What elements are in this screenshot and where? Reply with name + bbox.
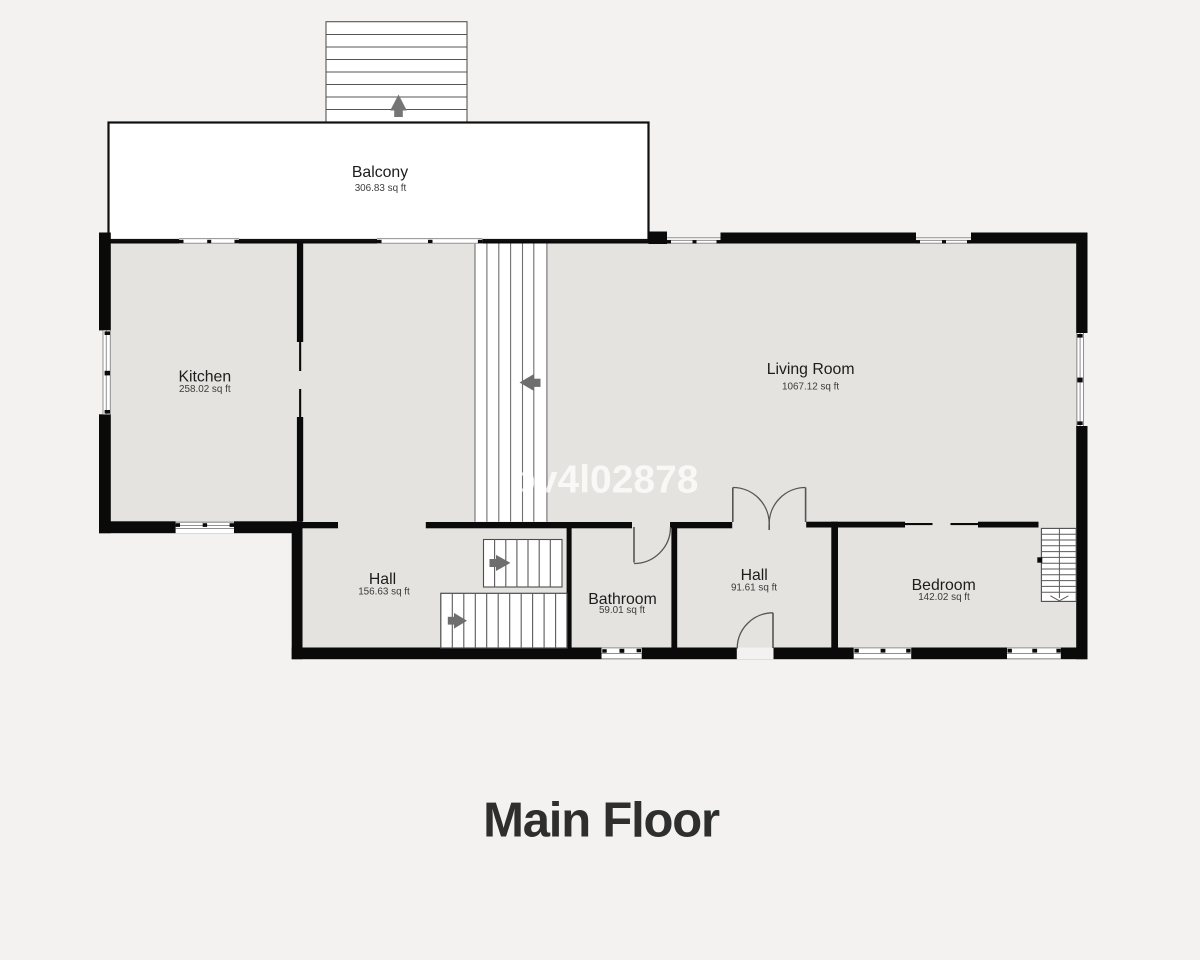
svg-text:Hall: Hall <box>741 567 768 584</box>
svg-text:142.02 sq ft: 142.02 sq ft <box>918 592 970 603</box>
svg-text:Living Room: Living Room <box>767 361 855 378</box>
svg-text:156.63 sq ft: 156.63 sq ft <box>358 587 410 598</box>
svg-text:306.83 sq ft: 306.83 sq ft <box>355 183 407 194</box>
svg-text:258.02 sq ft: 258.02 sq ft <box>179 384 231 395</box>
svg-text:91.61 sq ft: 91.61 sq ft <box>731 582 777 593</box>
svg-text:Kitchen: Kitchen <box>178 369 231 386</box>
svg-text:Hall: Hall <box>369 571 396 588</box>
svg-text:bv4l02878: bv4l02878 <box>512 459 699 502</box>
svg-text:Balcony: Balcony <box>352 164 408 181</box>
svg-text:Main Floor: Main Floor <box>483 794 720 848</box>
svg-text:1067.12 sq ft: 1067.12 sq ft <box>782 382 839 393</box>
svg-text:59.01 sq ft: 59.01 sq ft <box>599 605 645 616</box>
